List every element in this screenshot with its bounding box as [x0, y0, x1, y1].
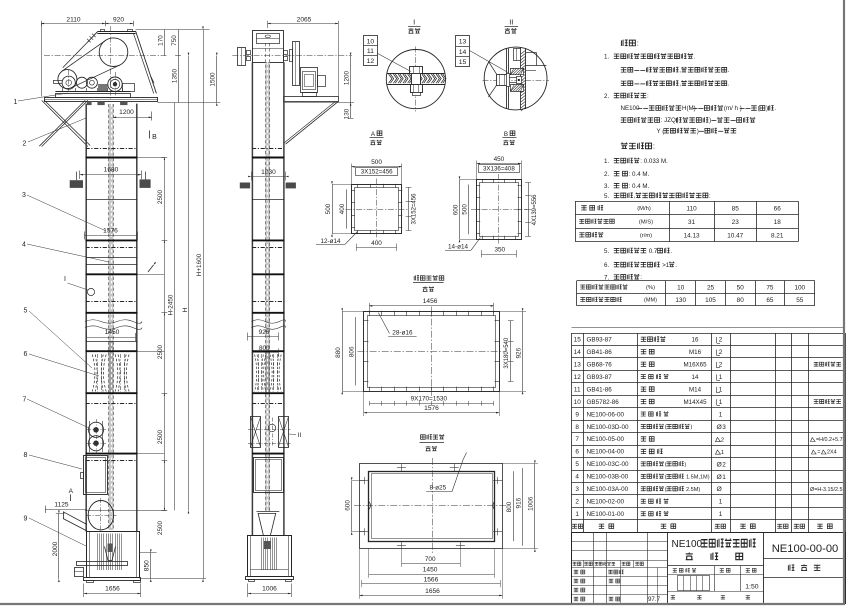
svg-text:II: II — [298, 432, 302, 439]
svg-text:400: 400 — [371, 240, 382, 247]
svg-text:500: 500 — [462, 204, 469, 215]
svg-text:(: ( — [665, 487, 667, 493]
svg-text:85: 85 — [732, 206, 740, 213]
svg-text:800: 800 — [506, 501, 513, 512]
svg-text:GB41-86: GB41-86 — [587, 386, 613, 393]
svg-text:100: 100 — [794, 285, 805, 292]
svg-text:6: 6 — [24, 351, 28, 358]
svg-text:14: 14 — [574, 349, 582, 356]
svg-text:65: 65 — [766, 297, 774, 304]
svg-text:1456: 1456 — [423, 298, 438, 305]
svg-text:M16: M16 — [689, 349, 702, 356]
svg-text:2065: 2065 — [297, 16, 312, 23]
svg-text::: : — [647, 93, 649, 100]
svg-text:): ) — [766, 105, 768, 112]
svg-text:16: 16 — [692, 337, 699, 344]
svg-text:NE100: NE100 — [672, 539, 703, 550]
svg-text:1: 1 — [719, 374, 723, 381]
svg-text:3X152=456: 3X152=456 — [412, 193, 418, 225]
svg-text:7: 7 — [23, 396, 27, 403]
svg-text:130: 130 — [344, 108, 351, 119]
svg-text:5: 5 — [575, 461, 579, 468]
svg-text:806: 806 — [348, 346, 355, 357]
svg-text:GB93-87: GB93-87 — [587, 374, 613, 381]
svg-text:2.: 2. — [604, 93, 609, 100]
svg-text:1500: 1500 — [210, 72, 217, 87]
svg-text:): ) — [691, 425, 693, 431]
svg-text:M14: M14 — [689, 386, 702, 393]
svg-text:18: 18 — [774, 219, 782, 226]
svg-text:8-ø25: 8-ø25 — [429, 485, 446, 492]
svg-text:450: 450 — [494, 156, 505, 163]
svg-text:GB93-87: GB93-87 — [587, 337, 613, 344]
svg-text:2500: 2500 — [157, 520, 164, 535]
svg-text:Ø: Ø — [717, 486, 723, 493]
svg-text:I: I — [413, 18, 415, 27]
svg-text:15: 15 — [459, 59, 467, 66]
svg-text:13: 13 — [459, 39, 467, 46]
svg-text:A: A — [69, 488, 74, 495]
svg-text:Ø=H-3.15/2.5: Ø=H-3.15/2.5 — [810, 487, 843, 493]
svg-text:1:50: 1:50 — [745, 583, 758, 590]
svg-text:11: 11 — [574, 386, 581, 393]
svg-text:(M/S): (M/S) — [639, 219, 653, 225]
svg-text:M14X45: M14X45 — [683, 399, 707, 406]
svg-text:2500: 2500 — [157, 429, 164, 444]
svg-text:10.47: 10.47 — [727, 233, 743, 240]
svg-text:NE100-00-00: NE100-00-00 — [772, 543, 839, 555]
svg-text:(%): (%) — [646, 285, 655, 291]
svg-text:4: 4 — [575, 474, 579, 481]
svg-text:1576: 1576 — [424, 405, 439, 412]
svg-text:3: 3 — [22, 192, 26, 199]
svg-text:1566: 1566 — [424, 576, 439, 583]
svg-text:14.13: 14.13 — [684, 233, 700, 240]
svg-text:(M/h): (M/h) — [637, 206, 651, 212]
svg-text:5.: 5. — [604, 193, 609, 200]
svg-text:NE100-03D-00: NE100-03D-00 — [587, 424, 630, 431]
svg-text:13: 13 — [574, 362, 582, 369]
svg-text:1030: 1030 — [261, 169, 276, 176]
svg-text:14: 14 — [459, 49, 467, 56]
svg-text::: : — [709, 193, 711, 200]
svg-text:25: 25 — [707, 285, 715, 292]
svg-text:NE100-03C-00: NE100-03C-00 — [587, 461, 630, 468]
svg-text:15: 15 — [574, 337, 582, 344]
svg-text:Y (: Y ( — [657, 128, 666, 135]
svg-text:2: 2 — [719, 349, 723, 356]
svg-text:(: ( — [665, 425, 667, 431]
svg-text:97.7: 97.7 — [648, 596, 661, 603]
svg-text:2: 2 — [721, 438, 724, 444]
svg-text:920: 920 — [113, 16, 124, 23]
svg-text:H: H — [182, 307, 189, 312]
svg-text:170: 170 — [158, 35, 165, 46]
svg-text:(r/m): (r/m) — [640, 233, 652, 239]
svg-text:500: 500 — [325, 203, 332, 214]
svg-text:800: 800 — [259, 345, 270, 352]
svg-text:1: 1 — [14, 99, 18, 106]
svg-text:700: 700 — [425, 556, 436, 563]
svg-text:: 0.4 M.: : 0.4 M. — [629, 183, 650, 190]
svg-text:: 0.4 M.: : 0.4 M. — [629, 171, 650, 178]
svg-text:.: . — [694, 53, 696, 60]
svg-text:2: 2 — [722, 461, 726, 468]
svg-text:2: 2 — [719, 337, 723, 344]
svg-text:3X136=408: 3X136=408 — [483, 166, 515, 173]
svg-text:8.21: 8.21 — [771, 233, 784, 240]
svg-text:NE100-04-00: NE100-04-00 — [587, 449, 625, 456]
svg-text:,: , — [634, 193, 636, 200]
svg-text:2500: 2500 — [157, 189, 164, 204]
svg-text:2: 2 — [575, 499, 579, 506]
svg-text:1.5M,1M): 1.5M,1M) — [684, 474, 709, 480]
svg-text:14-ø14: 14-ø14 — [448, 244, 468, 251]
svg-text:2500: 2500 — [157, 344, 164, 359]
svg-text:10: 10 — [677, 285, 685, 292]
svg-text:4: 4 — [22, 241, 26, 248]
svg-text:): ) — [697, 128, 699, 135]
svg-text:GB41-86: GB41-86 — [587, 349, 613, 356]
svg-text:0.7: 0.7 — [647, 248, 658, 255]
svg-text:350: 350 — [494, 247, 505, 254]
svg-text:1350: 1350 — [172, 68, 179, 83]
svg-text:: 0.033 M.: : 0.033 M. — [640, 158, 668, 165]
svg-text:>1: >1 — [660, 262, 669, 269]
svg-text:): ) — [709, 117, 711, 124]
svg-text:9X170=1530: 9X170=1530 — [411, 396, 448, 403]
svg-text:1450: 1450 — [105, 329, 120, 336]
svg-text:(: ( — [665, 474, 667, 480]
svg-text:75: 75 — [766, 285, 774, 292]
svg-text:926: 926 — [516, 347, 523, 358]
svg-text:.: . — [728, 67, 730, 74]
svg-text:6.: 6. — [604, 262, 609, 269]
svg-text:I: I — [64, 276, 66, 283]
svg-text:14: 14 — [692, 374, 699, 381]
svg-text:NE100-01-00: NE100-01-00 — [587, 511, 625, 518]
svg-text:NE100-02-00: NE100-02-00 — [587, 499, 625, 506]
svg-text:500: 500 — [371, 159, 382, 166]
svg-text:1006: 1006 — [527, 496, 534, 511]
svg-text:130: 130 — [675, 297, 686, 304]
svg-text:H+1600: H+1600 — [196, 253, 203, 276]
svg-text:12: 12 — [574, 374, 582, 381]
svg-text:NE100: NE100 — [621, 105, 640, 112]
svg-text:2000: 2000 — [52, 541, 59, 556]
svg-text:1: 1 — [722, 474, 726, 481]
svg-text:8: 8 — [24, 452, 28, 459]
svg-text:,: , — [679, 81, 681, 88]
svg-text:3: 3 — [575, 486, 579, 493]
svg-text:55: 55 — [796, 297, 804, 304]
svg-text:H-2450: H-2450 — [168, 294, 175, 315]
svg-text:50: 50 — [737, 285, 745, 292]
svg-text:NE100-05-00: NE100-05-00 — [587, 436, 625, 443]
svg-text:600: 600 — [452, 204, 459, 215]
svg-text:1125: 1125 — [54, 502, 69, 509]
svg-text:31: 31 — [688, 219, 696, 226]
svg-text:28-ø16: 28-ø16 — [392, 329, 413, 336]
svg-text:4X139=556: 4X139=556 — [532, 194, 538, 226]
svg-text:1656: 1656 — [425, 588, 440, 595]
svg-text:1450: 1450 — [423, 567, 438, 574]
svg-text:80: 80 — [737, 297, 745, 304]
svg-text:850: 850 — [143, 560, 150, 571]
svg-text:GB5782-86: GB5782-86 — [587, 399, 620, 406]
svg-text:23: 23 — [732, 219, 740, 226]
svg-text:=H/0.2+5.75: =H/0.2+5.75 — [816, 437, 846, 443]
svg-text:750: 750 — [171, 35, 178, 46]
svg-text:1: 1 — [721, 450, 724, 456]
svg-text:3.: 3. — [604, 183, 609, 190]
svg-text:1: 1 — [575, 511, 579, 518]
svg-text:1: 1 — [719, 499, 723, 506]
svg-text:12-ø14: 12-ø14 — [321, 238, 341, 245]
svg-text:.: . — [728, 81, 730, 88]
svg-text:): ) — [684, 462, 686, 468]
svg-text:3X152=456: 3X152=456 — [361, 169, 393, 176]
svg-text:2: 2 — [23, 140, 27, 147]
svg-text:3: 3 — [722, 424, 726, 431]
svg-text:NE100-03B-00: NE100-03B-00 — [587, 474, 629, 481]
svg-text:1: 1 — [719, 399, 723, 406]
svg-text:NE100-03A-00: NE100-03A-00 — [587, 486, 629, 493]
svg-text:1: 1 — [719, 511, 723, 518]
svg-text:2110: 2110 — [66, 16, 81, 23]
svg-text:1200: 1200 — [344, 70, 351, 85]
svg-text::: : — [653, 142, 655, 151]
svg-text:66: 66 — [774, 206, 782, 213]
svg-text:400: 400 — [339, 203, 346, 214]
svg-text:B: B — [504, 131, 508, 138]
svg-text:926: 926 — [259, 329, 270, 336]
svg-text:9: 9 — [575, 411, 579, 418]
svg-text:1: 1 — [719, 412, 723, 419]
svg-text:1.: 1. — [604, 54, 609, 61]
svg-text:5: 5 — [24, 308, 28, 315]
svg-text:2X4: 2X4 — [827, 450, 837, 456]
svg-text:1680: 1680 — [104, 167, 119, 174]
svg-text:.: . — [675, 262, 677, 269]
svg-text:105: 105 — [705, 297, 716, 304]
svg-text:8: 8 — [575, 424, 579, 431]
svg-text:1200: 1200 — [119, 109, 134, 116]
svg-text:11: 11 — [367, 48, 374, 55]
svg-text:(: ( — [665, 462, 667, 468]
svg-text:9: 9 — [24, 516, 28, 523]
svg-text:1006: 1006 — [262, 586, 277, 593]
svg-text:M16X65: M16X65 — [683, 362, 707, 369]
svg-text::: : — [637, 39, 639, 48]
svg-text:5.: 5. — [604, 248, 609, 255]
svg-text:=: = — [817, 450, 820, 456]
svg-text:,: , — [679, 67, 681, 74]
svg-text:6: 6 — [575, 449, 579, 456]
svg-text:2.: 2. — [604, 171, 609, 178]
svg-text:.: . — [670, 248, 672, 255]
svg-text:7: 7 — [575, 436, 579, 443]
svg-text:3X180=540: 3X180=540 — [504, 337, 510, 369]
svg-text:GB68-76: GB68-76 — [587, 362, 613, 369]
svg-text:110: 110 — [687, 206, 698, 213]
svg-text:10: 10 — [574, 399, 582, 406]
svg-text:600: 600 — [345, 500, 352, 511]
svg-text:12: 12 — [367, 58, 375, 65]
svg-text:2.5M): 2.5M) — [684, 487, 700, 493]
svg-text:II: II — [509, 18, 513, 27]
svg-text:NE100-06-00: NE100-06-00 — [587, 411, 625, 418]
svg-text:(m/ h ): (m/ h ) — [724, 105, 742, 112]
svg-text:B: B — [152, 134, 157, 141]
svg-text:.: . — [774, 105, 776, 112]
svg-text:1.: 1. — [604, 158, 609, 165]
svg-text:(MM): (MM) — [644, 298, 657, 304]
svg-text:916: 916 — [516, 497, 523, 508]
svg-text:1656: 1656 — [105, 586, 120, 593]
svg-text:880: 880 — [335, 347, 342, 358]
svg-text::: : — [640, 274, 642, 281]
svg-text:10: 10 — [367, 38, 375, 45]
